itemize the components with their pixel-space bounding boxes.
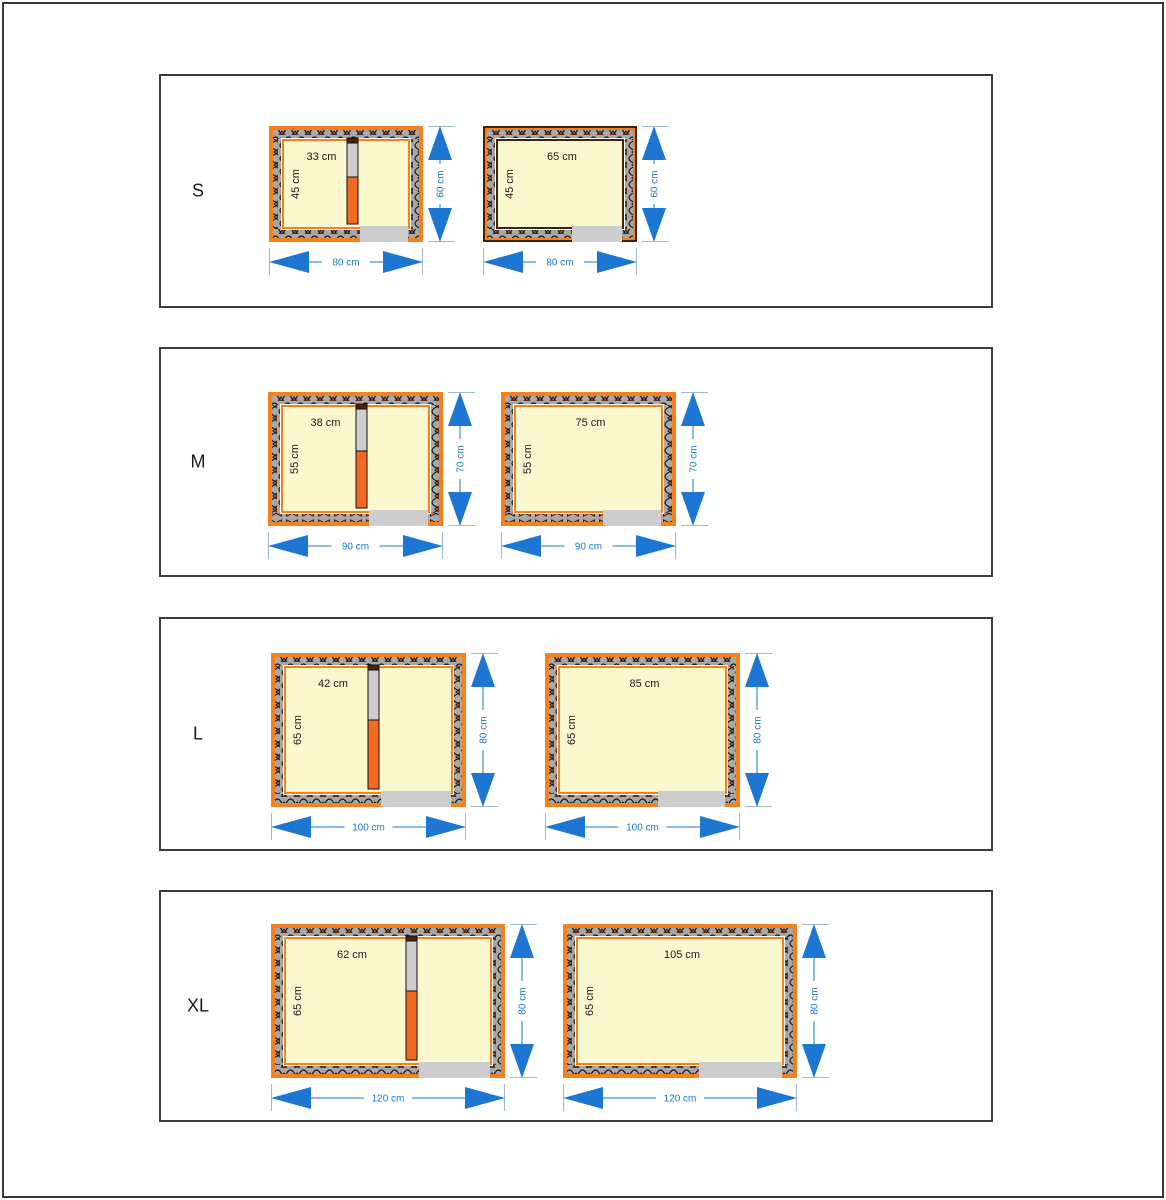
entrance-opening	[369, 510, 428, 526]
dimension-arrow-down	[802, 1044, 826, 1078]
width-dimension-label: 100 cm	[352, 823, 385, 834]
dimension-arrow-right	[426, 816, 466, 838]
floorplan-svg: 85 cm65 cm80 cm100 cm	[545, 653, 788, 853]
divider-upper-gray	[406, 941, 417, 991]
width-dimension-label: 80 cm	[332, 258, 359, 269]
size-label-s: S	[175, 181, 221, 202]
insulation-hatch-left	[275, 937, 284, 1065]
divider-lower-orange	[368, 720, 379, 789]
entrance-opening	[381, 791, 451, 807]
divider-upper-gray	[347, 143, 358, 177]
insulation-hatch-right	[453, 666, 462, 794]
dimension-arrow-up	[681, 392, 705, 426]
height-dimension-label: 80 cm	[518, 987, 529, 1014]
interior-width-label: 33 cm	[307, 151, 337, 163]
dimension-arrow-down	[510, 1044, 534, 1078]
insulation-hatch-left	[505, 405, 514, 513]
kennel-size-chart-page: { "units": "cm", "colors": { "orange": "…	[0, 0, 1166, 1200]
size-label-m: M	[175, 452, 221, 473]
size-label-xl: XL	[175, 996, 221, 1017]
floorplan-l-partitioned: 42 cm65 cm80 cm100 cm	[271, 653, 514, 853]
entrance-opening	[699, 1062, 782, 1078]
divider-lower-orange	[356, 451, 367, 508]
height-dimension-label: 80 cm	[753, 716, 764, 743]
dimension-arrow-down	[642, 208, 666, 242]
width-dimension-label: 100 cm	[626, 823, 659, 834]
insulation-hatch-left	[567, 937, 576, 1065]
insulation-hatch-top	[549, 657, 736, 666]
interior-width-label: 75 cm	[576, 417, 606, 429]
insulation-hatch-right	[492, 937, 501, 1065]
dimension-arrow-right	[383, 251, 423, 273]
floorplan-m-open: 75 cm55 cm70 cm90 cm	[501, 392, 724, 572]
height-dimension-label: 70 cm	[456, 445, 467, 472]
interior-depth-label: 65 cm	[292, 715, 304, 745]
interior-depth-label: 55 cm	[289, 444, 301, 474]
dimension-arrow-right	[465, 1087, 505, 1109]
height-dimension-label: 60 cm	[436, 170, 447, 197]
dimension-arrow-right	[757, 1087, 797, 1109]
insulation-hatch-right	[430, 405, 439, 513]
dimension-arrow-left	[483, 251, 523, 273]
floorplan-m-partitioned: 38 cm55 cm70 cm90 cm	[268, 392, 491, 572]
dimension-arrow-up	[642, 126, 666, 160]
dimension-arrow-right	[700, 816, 740, 838]
size-label-l: L	[175, 724, 221, 745]
floorplan-svg: 33 cm45 cm60 cm80 cm	[269, 126, 471, 288]
interior-width-label: 42 cm	[318, 678, 348, 690]
dimension-arrow-up	[745, 653, 769, 687]
floorplan-s-open: 65 cm45 cm60 cm80 cm	[483, 126, 685, 288]
floorplan-svg: 105 cm65 cm80 cm120 cm	[563, 924, 845, 1124]
dimension-arrow-up	[471, 653, 495, 687]
width-dimension-label: 120 cm	[664, 1094, 697, 1105]
insulation-hatch-left	[272, 405, 281, 513]
interior-depth-label: 55 cm	[522, 444, 534, 474]
dimension-arrow-left	[545, 816, 585, 838]
interior-width-label: 85 cm	[630, 678, 660, 690]
insulation-hatch-left	[487, 139, 496, 229]
divider-upper-gray	[368, 670, 379, 720]
floorplan-svg: 42 cm65 cm80 cm100 cm	[271, 653, 514, 853]
dimension-arrow-right	[403, 535, 443, 557]
interior-floor	[284, 141, 408, 227]
interior-depth-label: 65 cm	[566, 715, 578, 745]
insulation-hatch-right	[410, 139, 419, 229]
dimension-arrow-up	[510, 924, 534, 958]
interior-width-label: 65 cm	[547, 151, 577, 163]
dimension-arrow-right	[636, 535, 676, 557]
height-dimension-label: 80 cm	[479, 716, 490, 743]
width-dimension-label: 90 cm	[575, 542, 602, 553]
insulation-hatch-top	[505, 396, 672, 405]
dimension-arrow-left	[501, 535, 541, 557]
dimension-arrow-down	[681, 492, 705, 526]
floorplan-svg: 38 cm55 cm70 cm90 cm	[268, 392, 491, 572]
dimension-arrow-up	[428, 126, 452, 160]
interior-depth-label: 65 cm	[292, 986, 304, 1016]
dimension-arrow-left	[271, 1087, 311, 1109]
insulation-hatch-top	[273, 130, 419, 139]
width-dimension-label: 90 cm	[342, 542, 369, 553]
dimension-arrow-left	[269, 251, 309, 273]
width-dimension-label: 120 cm	[372, 1094, 405, 1105]
dimension-arrow-up	[802, 924, 826, 958]
entrance-opening	[572, 226, 622, 242]
interior-depth-label: 45 cm	[504, 169, 516, 199]
insulation-hatch-right	[663, 405, 672, 513]
dimension-arrow-left	[563, 1087, 603, 1109]
floorplan-xl-partitioned: 62 cm65 cm80 cm120 cm	[271, 924, 553, 1124]
entrance-opening	[360, 226, 408, 242]
entrance-opening	[658, 791, 725, 807]
divider-upper-gray	[356, 409, 367, 451]
divider-lower-orange	[406, 991, 417, 1060]
floorplan-s-partitioned: 33 cm45 cm60 cm80 cm	[269, 126, 471, 288]
interior-depth-label: 45 cm	[290, 169, 302, 199]
interior-width-label: 105 cm	[664, 949, 700, 961]
insulation-hatch-left	[275, 666, 284, 794]
insulation-hatch-right	[727, 666, 736, 794]
entrance-opening	[419, 1062, 490, 1078]
floorplan-svg: 65 cm45 cm60 cm80 cm	[483, 126, 685, 288]
height-dimension-label: 70 cm	[689, 445, 700, 472]
interior-floor	[286, 939, 490, 1063]
dimension-arrow-up	[448, 392, 472, 426]
height-dimension-label: 60 cm	[650, 170, 661, 197]
insulation-hatch-top	[275, 928, 501, 937]
dimension-arrow-down	[745, 773, 769, 807]
dimension-arrow-right	[597, 251, 637, 273]
width-dimension-label: 80 cm	[546, 258, 573, 269]
height-dimension-label: 80 cm	[810, 987, 821, 1014]
insulation-hatch-right	[624, 139, 633, 229]
floorplan-xl-open: 105 cm65 cm80 cm120 cm	[563, 924, 845, 1124]
dimension-arrow-down	[428, 208, 452, 242]
floorplan-svg: 62 cm65 cm80 cm120 cm	[271, 924, 553, 1124]
interior-width-label: 38 cm	[311, 417, 341, 429]
dimension-arrow-down	[471, 773, 495, 807]
insulation-hatch-top	[567, 928, 793, 937]
interior-depth-label: 65 cm	[584, 986, 596, 1016]
floorplan-svg: 75 cm55 cm70 cm90 cm	[501, 392, 724, 572]
interior-width-label: 62 cm	[337, 949, 367, 961]
insulation-hatch-right	[784, 937, 793, 1065]
dimension-arrow-left	[268, 535, 308, 557]
divider-lower-orange	[347, 177, 358, 224]
insulation-hatch-left	[273, 139, 282, 229]
entrance-opening	[603, 510, 661, 526]
dimension-arrow-left	[271, 816, 311, 838]
dimension-arrow-down	[448, 492, 472, 526]
insulation-hatch-left	[549, 666, 558, 794]
insulation-hatch-top	[487, 130, 633, 139]
floorplan-l-open: 85 cm65 cm80 cm100 cm	[545, 653, 788, 853]
